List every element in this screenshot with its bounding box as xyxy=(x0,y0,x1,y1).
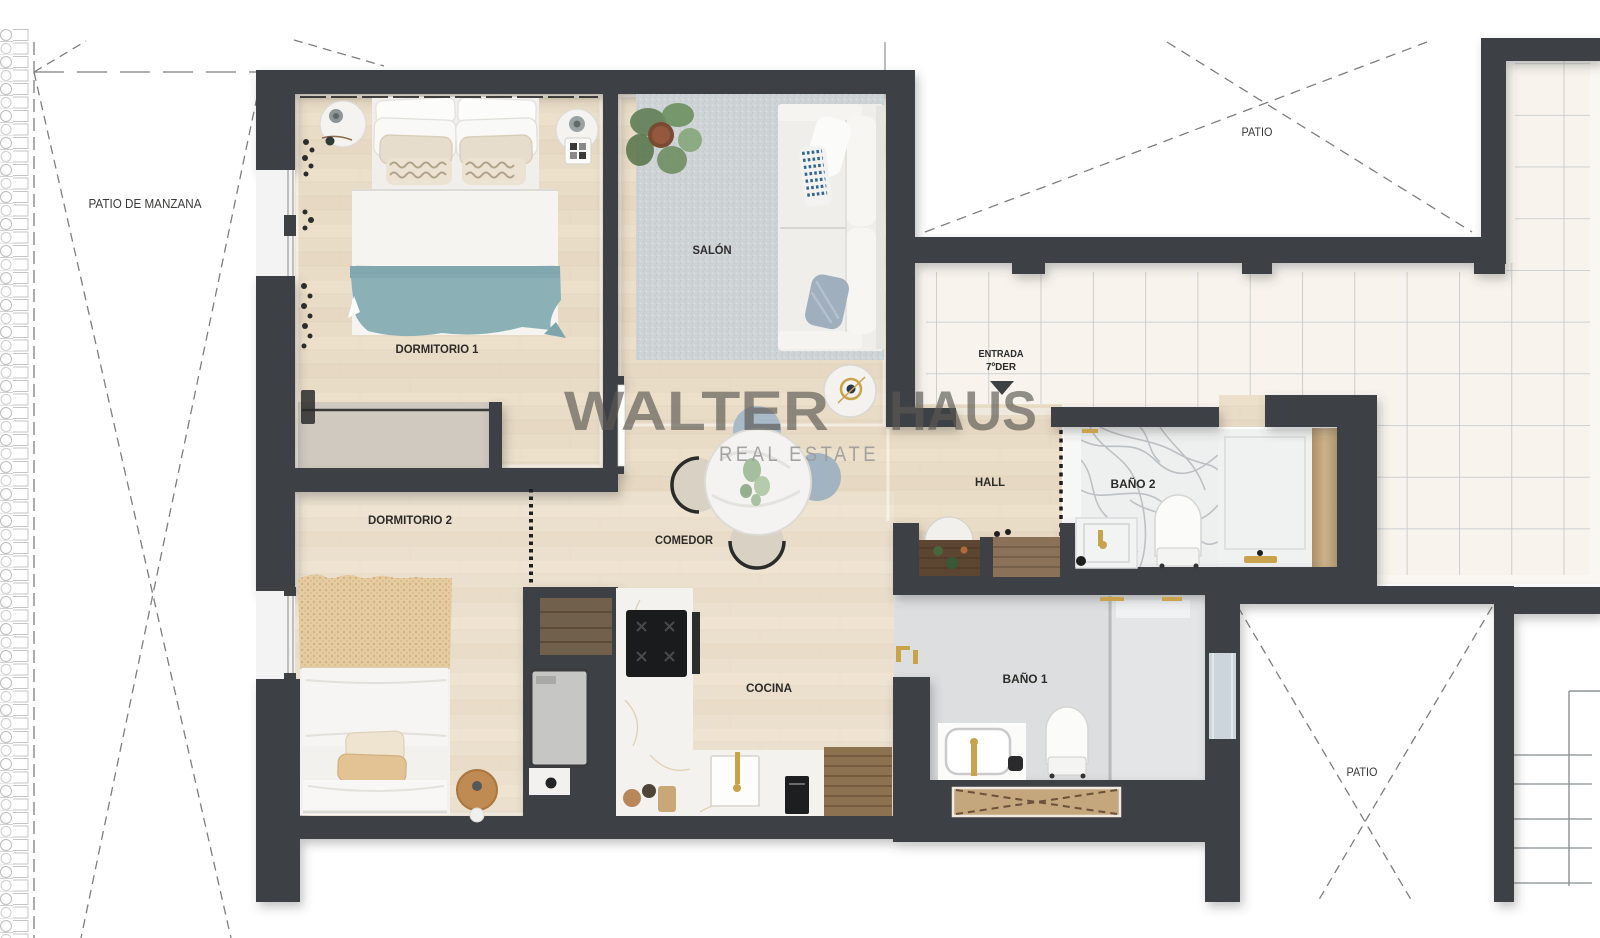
svg-text:PATIO: PATIO xyxy=(1242,127,1273,139)
svg-text:PATIO: PATIO xyxy=(1347,767,1378,779)
svg-text:ENTRADA: ENTRADA xyxy=(979,349,1024,360)
svg-text:7ºDER: 7ºDER xyxy=(986,362,1017,373)
svg-text:COMEDOR: COMEDOR xyxy=(655,533,713,547)
svg-text:COCINA: COCINA xyxy=(746,681,792,695)
svg-text:SALÓN: SALÓN xyxy=(693,242,732,257)
svg-text:HALL: HALL xyxy=(975,475,1005,489)
svg-text:BAÑO 1: BAÑO 1 xyxy=(1003,671,1048,686)
svg-text:DORMITORIO 1: DORMITORIO 1 xyxy=(396,342,479,356)
svg-text:DORMITORIO 2: DORMITORIO 2 xyxy=(368,513,452,527)
svg-text:REAL ESTATE: REAL ESTATE xyxy=(719,443,879,466)
svg-text:HAUS: HAUS xyxy=(889,379,1037,442)
svg-text:PATIO DE MANZANA: PATIO DE MANZANA xyxy=(89,197,203,211)
svg-text:WALTER: WALTER xyxy=(564,379,829,442)
svg-text:BAÑO 2: BAÑO 2 xyxy=(1111,476,1156,491)
